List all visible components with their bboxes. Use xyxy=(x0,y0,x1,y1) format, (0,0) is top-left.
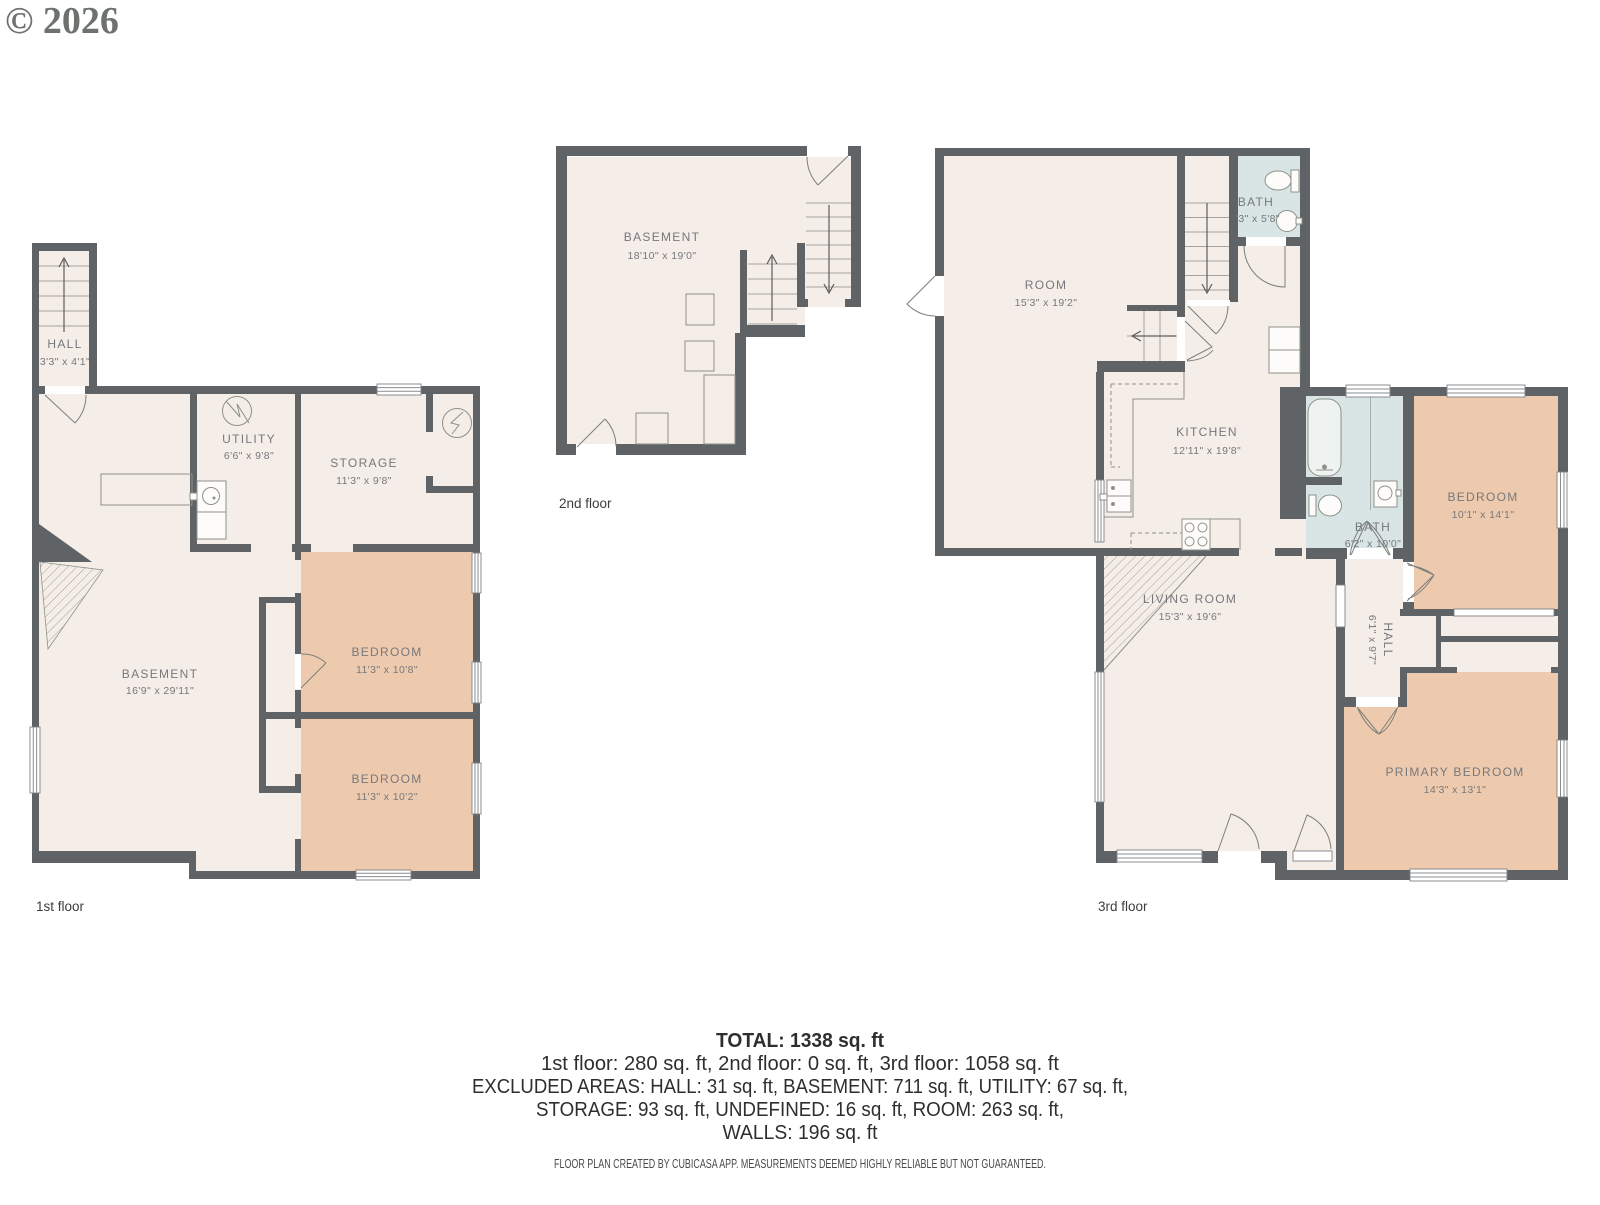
svg-text:KITCHEN: KITCHEN xyxy=(1176,425,1238,439)
svg-text:TOTAL: 1338 sq. ft: TOTAL: 1338 sq. ft xyxy=(716,1030,884,1052)
svg-text:STORAGE: STORAGE xyxy=(330,456,398,470)
svg-text:UTILITY: UTILITY xyxy=(222,432,276,446)
svg-text:HALL: HALL xyxy=(47,337,82,351)
svg-text:PRIMARY BEDROOM: PRIMARY BEDROOM xyxy=(1385,765,1524,779)
svg-text:11'3" x 10'2": 11'3" x 10'2" xyxy=(356,791,418,803)
svg-text:'3" x 5'8": '3" x 5'8" xyxy=(1236,213,1280,225)
svg-text:15'3" x 19'6": 15'3" x 19'6" xyxy=(1159,611,1222,623)
svg-text:STORAGE: 93 sq. ft, UNDEFINED:: STORAGE: 93 sq. ft, UNDEFINED: 16 sq. ft… xyxy=(536,1099,1064,1121)
svg-text:3rd floor: 3rd floor xyxy=(1098,899,1148,914)
svg-text:6'2" x 10'0": 6'2" x 10'0" xyxy=(1345,538,1402,550)
svg-text:3'3" x 4'1": 3'3" x 4'1" xyxy=(40,356,90,368)
svg-text:11'3" x 9'8": 11'3" x 9'8" xyxy=(336,475,392,487)
svg-text:15'3" x 19'2": 15'3" x 19'2" xyxy=(1015,297,1078,309)
svg-text:BEDROOM: BEDROOM xyxy=(351,645,422,659)
svg-text:LIVING ROOM: LIVING ROOM xyxy=(1143,592,1237,606)
svg-text:FLOOR PLAN CREATED BY CUBICASA: FLOOR PLAN CREATED BY CUBICASA APP. MEAS… xyxy=(554,1157,1046,1171)
svg-text:BATH: BATH xyxy=(1355,520,1391,534)
svg-text:HALL: HALL xyxy=(1381,622,1395,657)
svg-text:14'3" x 13'1": 14'3" x 13'1" xyxy=(1424,784,1487,796)
svg-text:© 2026: © 2026 xyxy=(5,0,119,42)
svg-text:6'6" x 9'8": 6'6" x 9'8" xyxy=(224,450,274,462)
svg-text:6'1" x 9'7": 6'1" x 9'7" xyxy=(1366,615,1378,665)
svg-text:BATH: BATH xyxy=(1238,195,1274,209)
svg-text:EXCLUDED AREAS: HALL: 31 sq. f: EXCLUDED AREAS: HALL: 31 sq. ft, BASEMEN… xyxy=(472,1076,1128,1098)
svg-text:BEDROOM: BEDROOM xyxy=(1447,490,1518,504)
svg-text:2nd floor: 2nd floor xyxy=(559,496,612,511)
svg-text:BASEMENT: BASEMENT xyxy=(122,667,198,681)
svg-text:ROOM: ROOM xyxy=(1025,278,1068,292)
svg-text:1st floor: 1st floor xyxy=(36,899,85,914)
svg-text:18'10" x 19'0": 18'10" x 19'0" xyxy=(627,250,696,262)
svg-text:11'3" x 10'8": 11'3" x 10'8" xyxy=(356,664,418,676)
svg-text:10'1" x 14'1": 10'1" x 14'1" xyxy=(1452,509,1515,521)
svg-text:1st floor: 280 sq. ft, 2nd flo: 1st floor: 280 sq. ft, 2nd floor: 0 sq. … xyxy=(541,1053,1059,1075)
svg-text:16'9" x 29'11": 16'9" x 29'11" xyxy=(126,685,194,697)
svg-text:WALLS: 196 sq. ft: WALLS: 196 sq. ft xyxy=(723,1122,878,1144)
svg-text:BASEMENT: BASEMENT xyxy=(624,230,700,244)
svg-text:BEDROOM: BEDROOM xyxy=(351,772,422,786)
svg-text:12'11" x 19'8": 12'11" x 19'8" xyxy=(1173,445,1241,457)
